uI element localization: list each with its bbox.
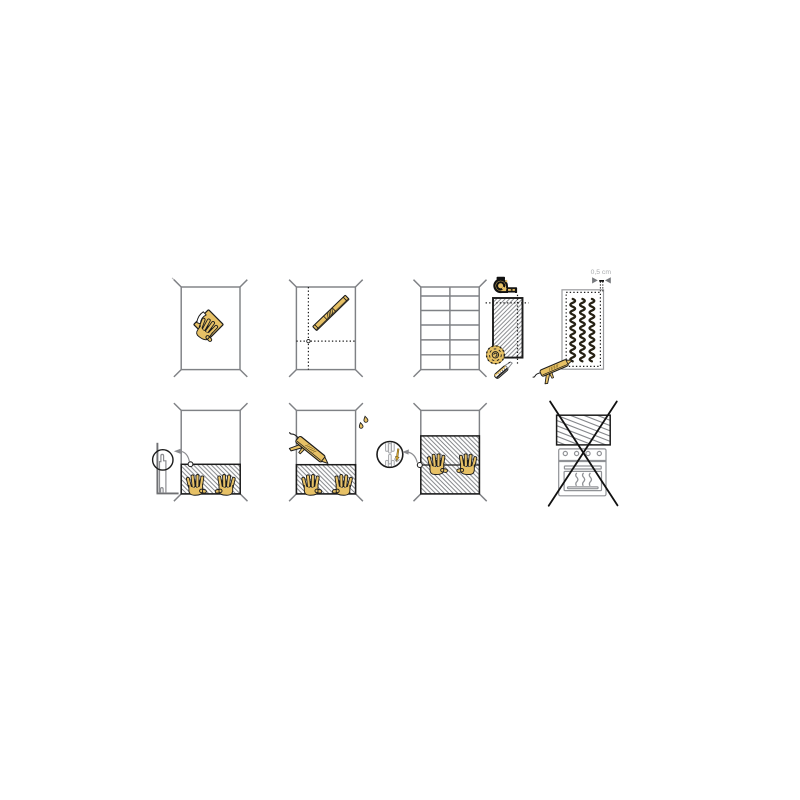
svg-text:0,5 cm: 0,5 cm [591, 269, 612, 276]
